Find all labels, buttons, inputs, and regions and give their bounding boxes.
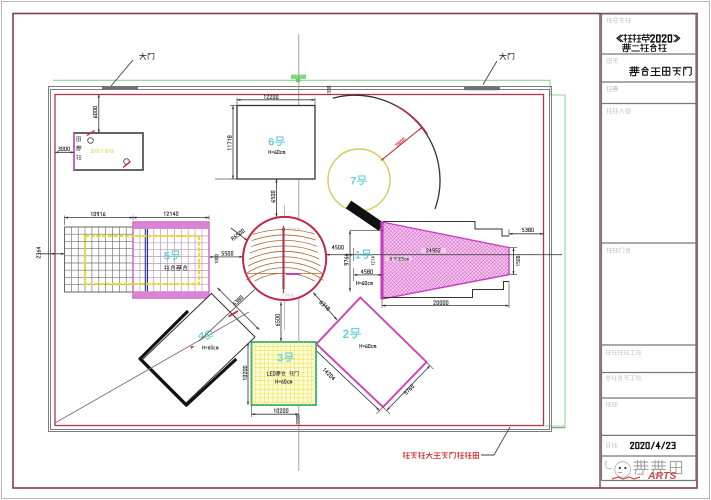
svg-text:7: 7 xyxy=(350,176,356,188)
svg-text:6: 6 xyxy=(268,137,274,149)
svg-text:3: 3 xyxy=(277,353,283,365)
svg-text:2: 2 xyxy=(343,327,350,341)
svg-text:1: 1 xyxy=(355,250,361,262)
svg-text:ARTS: ARTS xyxy=(647,470,676,482)
svg-text:5: 5 xyxy=(164,251,170,263)
